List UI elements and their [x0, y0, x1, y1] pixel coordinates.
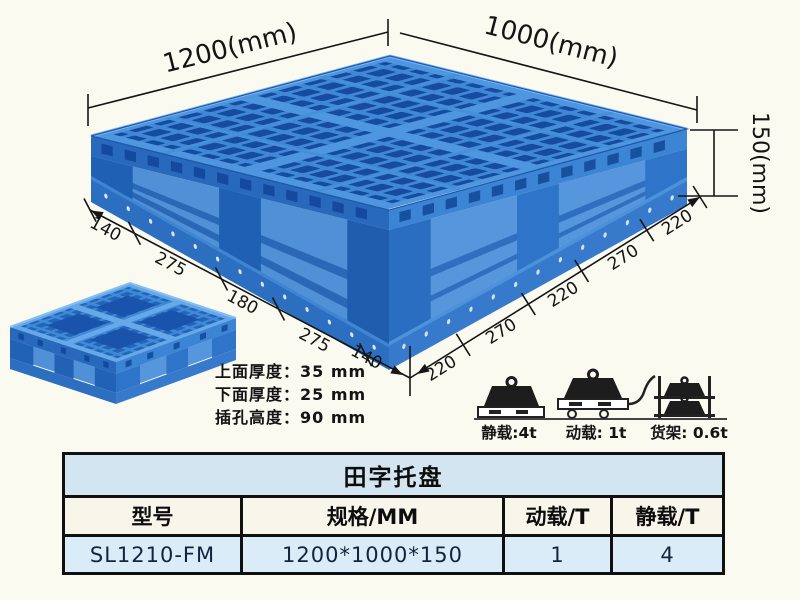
dim-right-2: 220 [544, 278, 582, 312]
rack-load-icon [654, 376, 715, 418]
dim-left-0: 140 [86, 213, 124, 246]
table-row: SL1210-FM 1200*1000*150 1 4 [64, 536, 724, 574]
note-bottom-thickness: 下面厚度：25 mm [215, 385, 366, 404]
thickness-notes: 上面厚度：35 mm 下面厚度：25 mm 插孔高度：90 mm [215, 362, 366, 427]
table-header-row: 型号 规格/MM 动载/T 静载/T [64, 497, 724, 536]
cell-dynamic-load: 1 [504, 536, 612, 574]
small-pallet [10, 283, 236, 404]
rack-load-label: 货架: 0.6t [650, 423, 728, 442]
product-sheet: 1200(mm) 1000(mm) 150(mm) 140 275 180 27… [0, 0, 800, 600]
note-fork-height: 插孔高度：90 mm [215, 408, 366, 427]
static-load-icon [478, 378, 544, 418]
note-top-thickness: 上面厚度：35 mm [215, 362, 366, 381]
header-model: 型号 [64, 497, 242, 536]
cell-spec: 1200*1000*150 [242, 536, 504, 574]
dim-right-1: 270 [482, 315, 520, 349]
dim-1200-label: 1200(mm) [160, 17, 300, 79]
cell-static-load: 4 [612, 536, 724, 574]
dim-1000-label: 1000(mm) [481, 11, 621, 74]
dynamic-load-label: 动载: 1t [566, 424, 627, 442]
dim-right-0: 220 [422, 352, 460, 386]
dim-150-label: 150(mm) [747, 112, 772, 214]
table-title: 田字托盘 [64, 454, 724, 497]
cell-model: SL1210-FM [64, 536, 242, 574]
header-spec: 规格/MM [242, 497, 504, 536]
pallet-illustration: 1200(mm) 1000(mm) 150(mm) 140 275 180 27… [0, 0, 800, 450]
spec-table: 田字托盘 型号 规格/MM 动载/T 静载/T SL1210-FM 1200*1… [62, 452, 725, 575]
header-static-load: 静载/T [612, 497, 724, 536]
static-load-label: 静载:4t [481, 423, 537, 442]
table-title-row: 田字托盘 [64, 454, 724, 497]
dynamic-load-icon [558, 370, 655, 418]
load-capacity-icons: 静载:4t 动载: 1t 货架: 0.6t [474, 370, 728, 442]
header-dynamic-load: 动载/T [504, 497, 612, 536]
